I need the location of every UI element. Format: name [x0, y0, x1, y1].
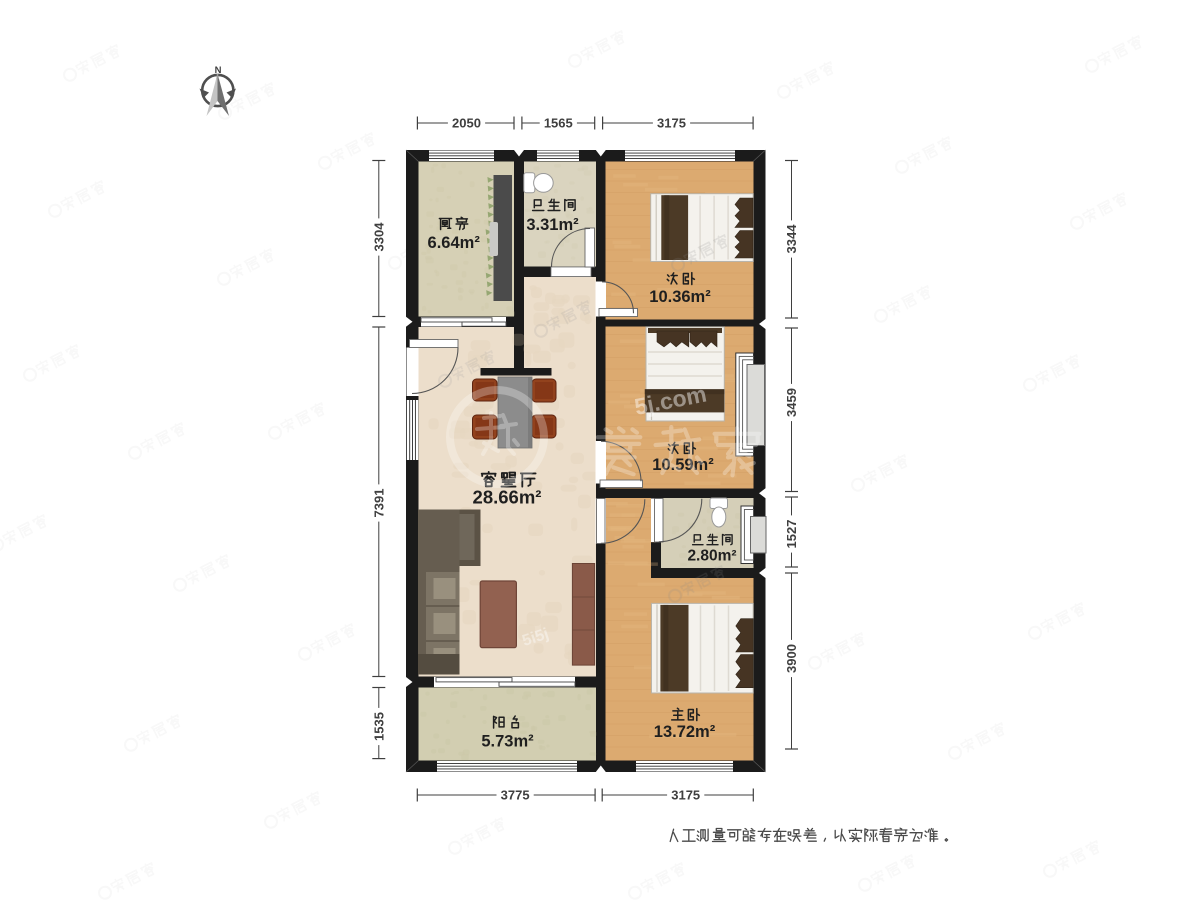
svg-text:3304: 3304 — [371, 222, 386, 252]
svg-text:3344: 3344 — [784, 224, 799, 254]
svg-text:2.80m²: 2.80m² — [687, 548, 736, 565]
svg-text:10.36m²: 10.36m² — [649, 288, 711, 306]
svg-text:3900: 3900 — [784, 644, 799, 673]
svg-text:3175: 3175 — [671, 788, 700, 803]
svg-text:5.73m²: 5.73m² — [481, 733, 534, 751]
svg-text:1565: 1565 — [544, 116, 573, 131]
svg-text:1535: 1535 — [371, 712, 386, 741]
svg-text:3175: 3175 — [657, 116, 686, 131]
svg-text:28.66m²: 28.66m² — [473, 487, 542, 508]
svg-text:2050: 2050 — [452, 116, 481, 131]
svg-text:7391: 7391 — [371, 489, 386, 518]
svg-text:N: N — [215, 65, 222, 76]
svg-text:13.72m²: 13.72m² — [654, 723, 716, 741]
svg-text:1527: 1527 — [784, 520, 799, 549]
svg-text:3459: 3459 — [784, 388, 799, 417]
svg-text:6.64m²: 6.64m² — [428, 234, 481, 252]
svg-text:3.31m²: 3.31m² — [526, 216, 579, 234]
svg-text:3775: 3775 — [501, 788, 530, 803]
